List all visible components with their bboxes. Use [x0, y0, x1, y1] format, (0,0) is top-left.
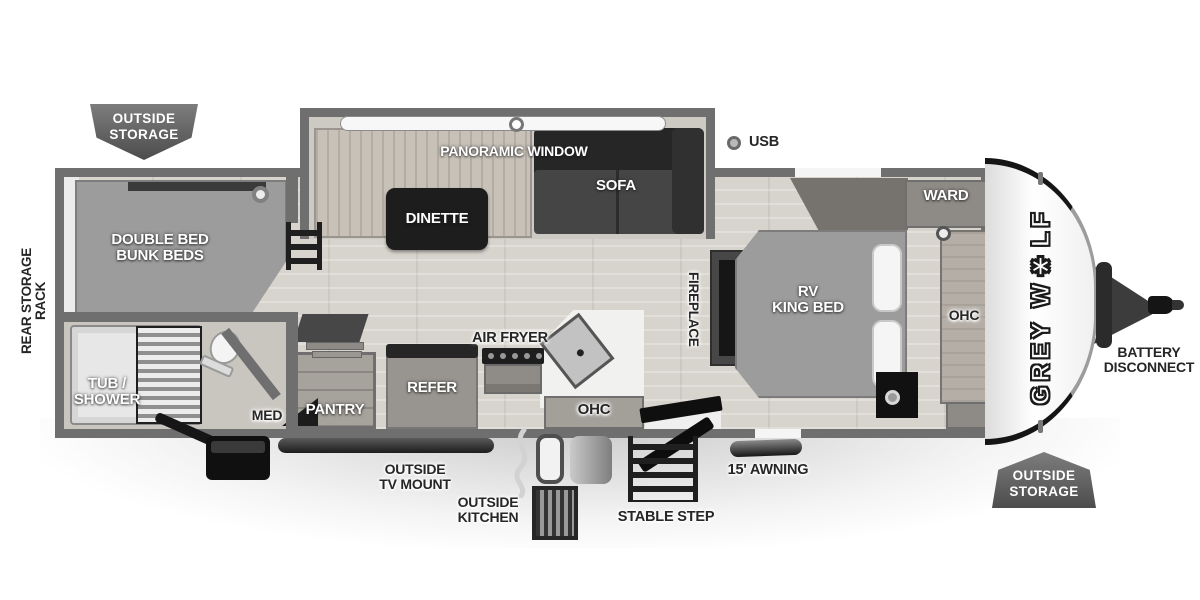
usb-label: USB [746, 135, 782, 151]
floorplan-canvas: OUTSIDE STORAGE OUTSIDE STORAGE REAR STO… [0, 0, 1200, 600]
rear-entry-step-top [211, 441, 265, 453]
outside-tv-mount-label: OUTSIDE TV MOUNT [366, 460, 464, 494]
rear-storage-rack-label: REAR STORAGE RACK [22, 230, 46, 372]
sink-drain [575, 348, 585, 358]
ward-knob-icon [936, 226, 951, 241]
stable-step-icon [628, 436, 698, 502]
entry-step-tread-1 [306, 342, 364, 350]
panoramic-window-label: PANORAMIC WINDOW [430, 142, 598, 160]
outside-tv-mount-bar [278, 438, 494, 453]
pantry-label: PANTRY [298, 400, 372, 420]
rear-entry-step [206, 436, 270, 480]
hitch-coupler-tip [1172, 300, 1184, 310]
outside-kitchen-tank [570, 436, 612, 484]
bunkroom-wall [286, 177, 298, 223]
bedroom-ohc-label: OHC [940, 306, 988, 324]
window-latch-icon [509, 117, 524, 132]
nightstand-knob-icon [885, 390, 900, 405]
outside-kitchen-griddle [536, 434, 564, 484]
bunk-shelf [128, 182, 266, 191]
outside-kitchen-grill [532, 486, 578, 540]
awning-roller [730, 439, 803, 458]
awning-label: 15' AWNING [724, 462, 812, 480]
dinette-label: DINETTE [386, 188, 488, 250]
usb-port-icon [727, 136, 741, 150]
fireplace-label: FIREPLACE [682, 252, 704, 366]
battery-disconnect-label: BATTERY DISCONNECT [1098, 342, 1200, 378]
bedroom-dresser [946, 402, 988, 429]
outside-kitchen-label: OUTSIDE KITCHEN [444, 492, 532, 528]
top-wall-window [795, 168, 881, 177]
bunk-beds-label: DOUBLE BED BUNK BEDS [98, 228, 222, 268]
med-label: MED [244, 406, 290, 424]
refer-label: REFER [398, 378, 466, 398]
entry-steps [293, 314, 368, 342]
outside-storage-badge-top: OUTSIDE STORAGE [90, 104, 198, 160]
bathroom-top-wall [64, 312, 292, 322]
king-bed-label: RV KING BED [760, 280, 856, 320]
brand-logo: GREY W✱LF [1024, 190, 1058, 424]
ward-label: WARD [905, 186, 987, 206]
refer-top [386, 344, 478, 358]
tub-shower-label: TUB / SHOWER [66, 372, 148, 412]
sofa-arm [672, 128, 704, 234]
bunk-light-icon [252, 186, 269, 203]
battery-disconnect-lever [1096, 262, 1112, 348]
hitch-coupler [1148, 296, 1174, 314]
cooktop-burners [488, 353, 494, 359]
sofa-label: SOFA [580, 176, 652, 196]
bed-pillow-1 [872, 244, 902, 312]
entry-step-tread-2 [312, 351, 362, 358]
kitchen-ohc-label: OHC [562, 400, 626, 420]
panoramic-window-strip [340, 116, 666, 131]
air-fryer-label: AIR FRYER [468, 331, 552, 347]
stable-step-label: STABLE STEP [610, 508, 722, 528]
range-body [484, 364, 542, 394]
bottom-wall-window [755, 429, 801, 438]
cap-hinge-top [1038, 172, 1043, 185]
bunk-ladder-icon [286, 222, 322, 270]
